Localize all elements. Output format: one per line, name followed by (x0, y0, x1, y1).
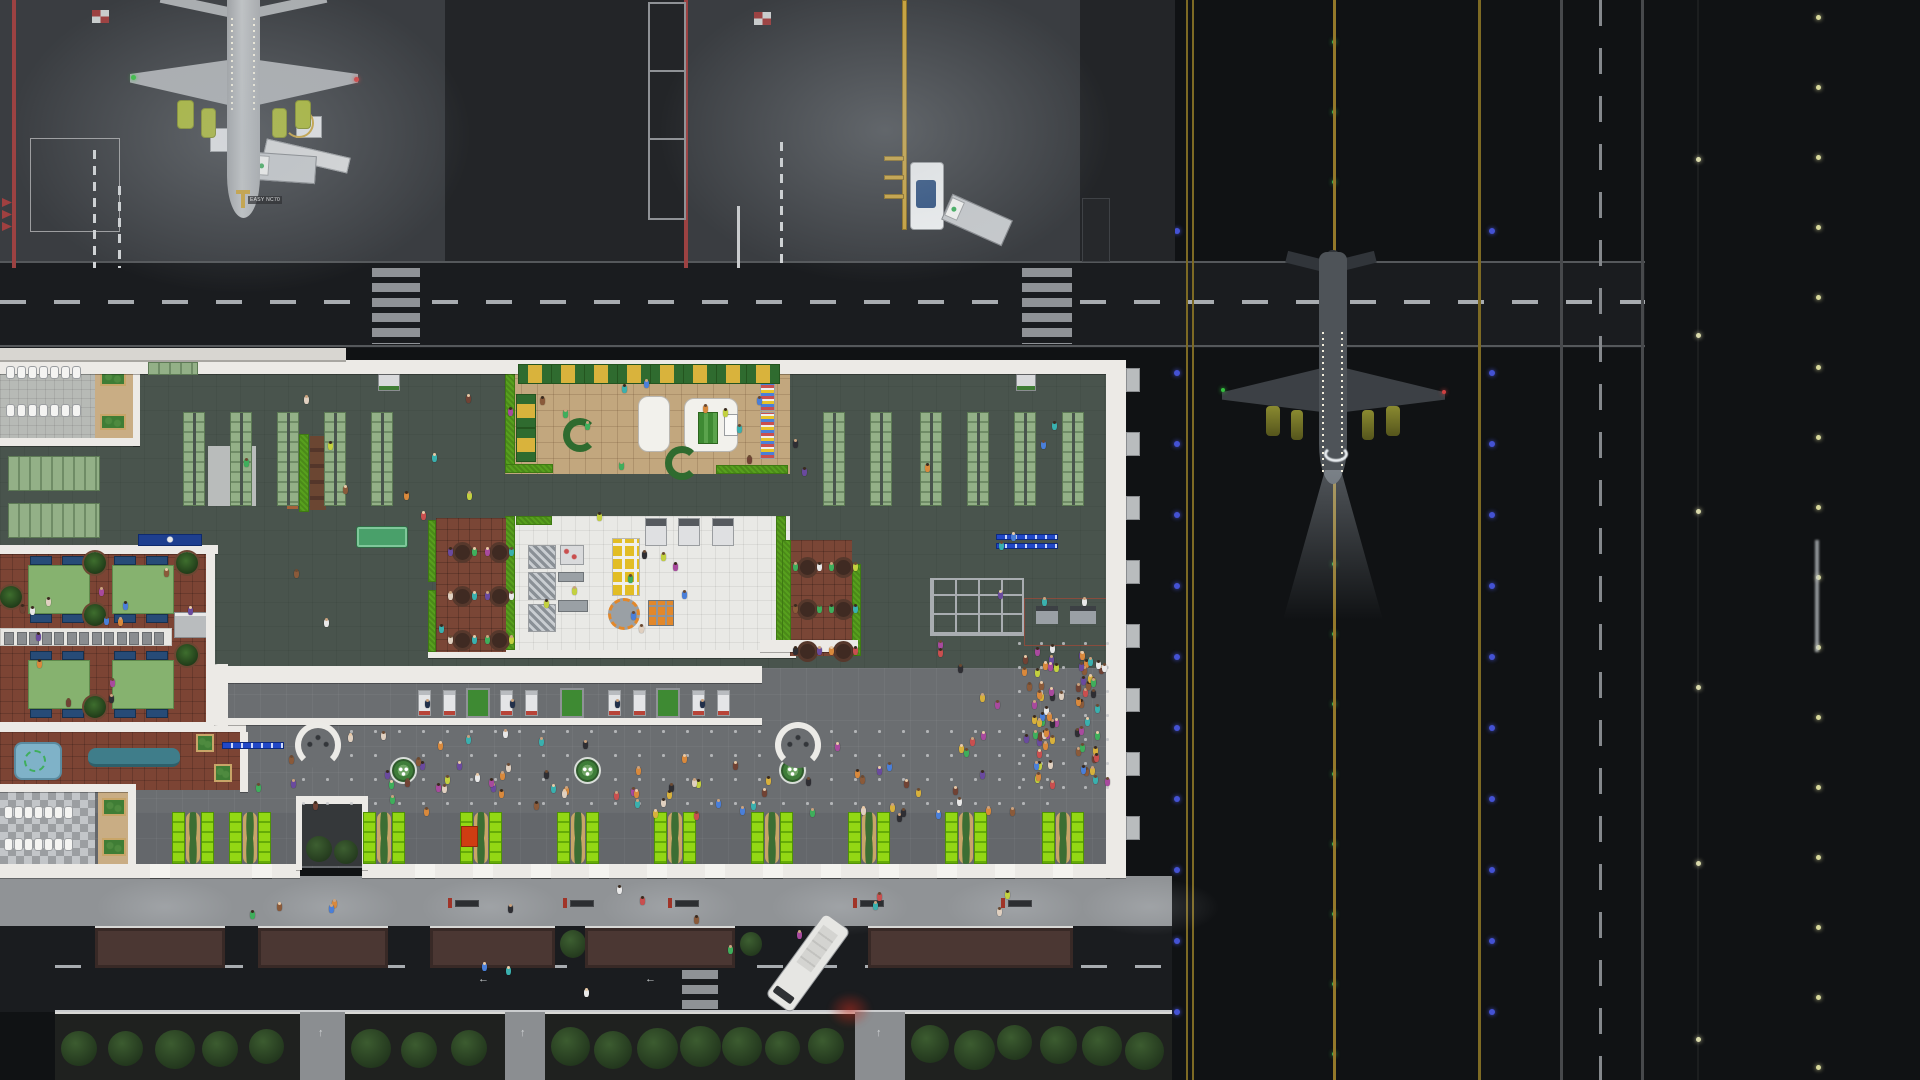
parked-aircraft-windows-right (253, 18, 255, 110)
taxiing-aircraft[interactable] (1180, 230, 1480, 650)
taxiing-engine-1 (1266, 406, 1280, 436)
taxiing-engine-4 (1386, 406, 1400, 436)
taxiing-engine-3 (1362, 410, 1374, 440)
taxiing-engine-2 (1291, 410, 1303, 440)
aircraft-flight-label: EASY NC70 (248, 196, 282, 204)
taxiing-nav-light-red (1442, 390, 1446, 394)
parked-nav-light-red (354, 77, 359, 82)
parked-aircraft-engine-1 (177, 100, 194, 129)
parked-nose-mark-stem (241, 194, 245, 208)
parked-aircraft[interactable]: EASY NC70 (0, 0, 460, 240)
parked-aircraft-engine-4 (295, 100, 311, 129)
taxiing-nose-light (1324, 446, 1348, 462)
bus-windshield (772, 985, 795, 1004)
bus-brake-light-glow (828, 992, 872, 1028)
parked-aircraft-windows-left (231, 18, 233, 110)
parked-aircraft-tailplane-right (257, 0, 328, 17)
baggage-truck-stand2[interactable] (941, 194, 1013, 246)
parked-nav-light-green (131, 75, 136, 80)
bus-roof-hatch (796, 925, 838, 973)
taxiing-nav-light-green (1221, 388, 1225, 392)
parked-aircraft-engine-2 (201, 108, 216, 138)
game-viewport[interactable]: ✈✈✈✈↓↑↓↑ ←←↑↑↑ EASY NC70 (0, 0, 1920, 1080)
landing-light-beam (1283, 470, 1383, 620)
parked-aircraft-engine-3 (272, 108, 287, 138)
parked-aircraft-tailplane-left (160, 0, 231, 17)
